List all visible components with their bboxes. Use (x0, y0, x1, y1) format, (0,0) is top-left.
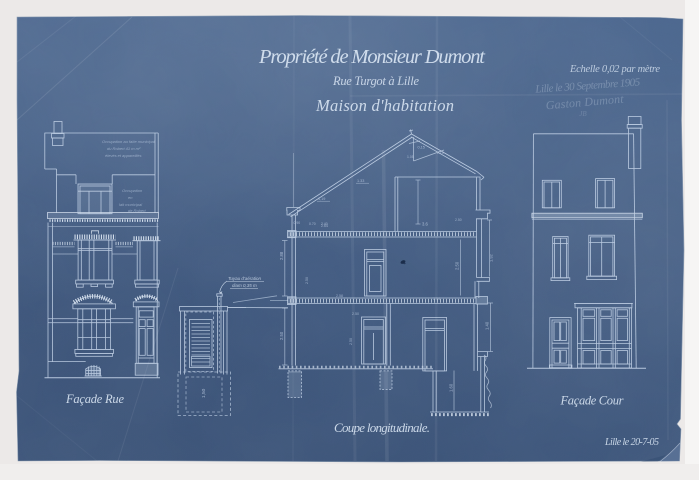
svg-text:1.60: 1.60 (448, 383, 453, 392)
svg-text:3.6: 3.6 (422, 222, 428, 227)
svg-text:2.50: 2.50 (349, 338, 353, 345)
svg-text:2.50: 2.50 (279, 331, 284, 340)
svg-text:1.40: 1.40 (485, 321, 490, 330)
svg-text:2.50: 2.50 (352, 312, 359, 316)
svg-text:2.64: 2.64 (321, 224, 328, 228)
svg-text:Tuyau d'aération: Tuyau d'aération (228, 276, 262, 281)
svg-text:1,50: 1,50 (201, 388, 207, 398)
svg-text:Occupation au faîte municipal: Occupation au faîte municipal (102, 139, 155, 144)
svg-text:élevés et appareillés: élevés et appareillés (105, 153, 141, 158)
svg-text:0.90: 0.90 (294, 221, 301, 225)
svg-text:Lille le 20-7-05: Lille le 20-7-05 (604, 437, 659, 448)
svg-text:2.88: 2.88 (279, 251, 284, 260)
svg-text:2.50: 2.50 (305, 277, 309, 284)
svg-text:Façade Rue: Façade Rue (65, 392, 124, 406)
svg-text:Rue Turgot à Lille: Rue Turgot à Lille (332, 74, 419, 88)
svg-text:Façade Cour: Façade Cour (560, 394, 624, 408)
svg-text:Occupation: Occupation (122, 188, 143, 193)
svg-text:JB: JB (579, 110, 587, 118)
svg-text:2.14: 2.14 (433, 297, 440, 301)
svg-text:2.15: 2.15 (437, 151, 444, 155)
svg-text:1.05: 1.05 (407, 155, 414, 159)
svg-text:Coupe longitudinale.: Coupe longitudinale. (334, 420, 430, 435)
svg-text:du Robert 41 m m²: du Robert 41 m m² (107, 146, 141, 151)
svg-text:0.70: 0.70 (309, 222, 316, 226)
svg-text:Echelle 0,02 par mètre: Echelle 0,02 par mètre (569, 64, 660, 75)
svg-text:2.58: 2.58 (336, 294, 343, 298)
svg-text:Propriété de Monsieur Dumont: Propriété de Monsieur Dumont (258, 46, 486, 68)
svg-text:en: en (128, 195, 133, 200)
svg-text:1,19: 1,19 (318, 197, 325, 201)
svg-text:1.92: 1.92 (489, 253, 494, 262)
svg-text:2.50: 2.50 (455, 218, 462, 222)
svg-text:lait municipal: lait municipal (119, 202, 142, 207)
svg-text:Maison d'habitation: Maison d'habitation (315, 96, 454, 115)
svg-text:diam 0,35 m: diam 0,35 m (232, 283, 257, 288)
svg-text:0,15: 0,15 (418, 146, 425, 150)
svg-text:2.50: 2.50 (455, 261, 460, 270)
svg-text:1.33: 1.33 (357, 179, 364, 183)
